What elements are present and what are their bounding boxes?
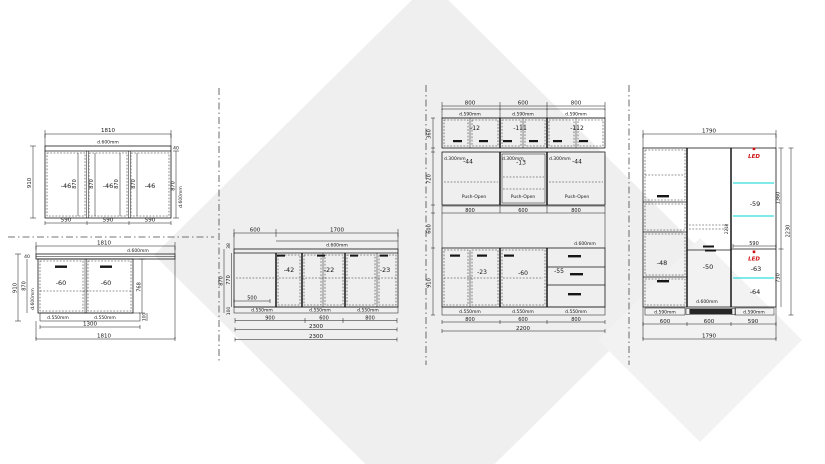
depth-label: d.550mm xyxy=(459,309,481,315)
depth-label: d.600mm xyxy=(696,299,718,305)
depth-label: d.590mm xyxy=(654,309,676,315)
dim-label: 2300 xyxy=(309,334,323,340)
dim-label: 2200 xyxy=(516,326,530,332)
dim-label: 870 xyxy=(89,179,95,189)
depth-label: d.550mm xyxy=(309,308,331,314)
depth-label: d.590mm xyxy=(743,309,765,315)
dim-label: 870 xyxy=(131,179,137,189)
dim-label: 900 xyxy=(265,315,275,321)
depth-label: d.600mm xyxy=(574,241,596,247)
door-label: -23 xyxy=(477,269,487,276)
door-label: -48 xyxy=(657,259,668,267)
dim-label: 600 xyxy=(319,315,329,321)
depth-label: d.590mm xyxy=(565,111,587,117)
depth-label: d.550mm xyxy=(47,315,69,321)
dim-label: 2300 xyxy=(309,324,323,330)
depth-label: d.550mm xyxy=(565,309,587,315)
dim-label: 600 xyxy=(518,208,528,214)
led-label: LED xyxy=(748,154,760,160)
dim-label: 1790 xyxy=(702,334,716,340)
door-label: -60 xyxy=(518,270,528,277)
depth-label: d.600mm xyxy=(97,140,119,146)
dim-label: 600 xyxy=(704,319,715,325)
dim-label: 590 xyxy=(749,241,759,247)
dim-label: 100 xyxy=(226,307,232,316)
depth-label: d.300mm xyxy=(549,156,571,162)
depth-label: d.550mm xyxy=(512,309,534,315)
depth-label: d.600mm xyxy=(326,243,348,249)
dim-label: 870 xyxy=(171,181,177,191)
led-label: LED xyxy=(748,257,760,263)
door-label: -46 xyxy=(145,182,156,190)
door-label: -111 xyxy=(513,125,527,132)
depth-label: d.600mm xyxy=(127,248,149,254)
dim-label: 800 xyxy=(571,317,581,323)
dim-label: 870 xyxy=(72,179,78,189)
dim-label: 800 xyxy=(571,208,581,214)
dim-label: 1700 xyxy=(330,228,344,234)
dim-label: 720 xyxy=(427,174,433,184)
dim-label: 910 xyxy=(27,177,33,188)
depth-label: d.550mm xyxy=(94,315,116,321)
dim-label: 1360 xyxy=(776,192,782,205)
dim-label: 590 xyxy=(61,218,72,224)
depth-label: d.600mm xyxy=(178,186,184,208)
door-label: -59 xyxy=(750,200,761,208)
dim-label: 600 xyxy=(518,101,529,107)
push-open-label: Push-Open xyxy=(462,194,487,200)
dim-label: 1790 xyxy=(702,129,716,135)
dim-label: 40 xyxy=(173,146,179,152)
door-label: -64 xyxy=(750,288,761,296)
door-label: -44 xyxy=(572,159,582,166)
door-label: -42 xyxy=(284,266,295,274)
door-label: -22 xyxy=(324,266,335,274)
door-label: -63 xyxy=(751,265,762,273)
door-label: -23 xyxy=(380,266,391,274)
dim-label: 360 xyxy=(427,129,433,139)
depth-label: d.550mm xyxy=(357,308,379,314)
dim-label: 1810 xyxy=(101,128,115,134)
dim-label: 500 xyxy=(247,296,257,302)
dim-label: 600 xyxy=(518,317,528,323)
dim-label: 730 xyxy=(776,273,782,283)
led-spot-icon xyxy=(753,148,756,151)
led-spot-icon xyxy=(753,251,756,254)
dim-label: 590 xyxy=(145,218,156,224)
door-label: -55 xyxy=(554,268,564,275)
door-label: -60 xyxy=(56,279,67,287)
door-label: -13 xyxy=(516,160,526,167)
door-label: -60 xyxy=(101,279,112,287)
dim-label: 800 xyxy=(465,208,475,214)
cad-canvas: 1810 d.600mm 870 870 870 870 -46 -46 -46… xyxy=(0,0,825,464)
dim-label: 38 xyxy=(226,243,232,249)
push-open-label: Push-Open xyxy=(565,194,590,200)
wall-cabinet-drawing: 1810 d.600mm 870 870 870 870 -46 -46 -46… xyxy=(27,128,184,225)
dim-label: 1810 xyxy=(97,241,111,247)
dim-label: 870 xyxy=(22,281,28,291)
dim-label: 870 xyxy=(219,276,225,286)
push-open-label: Push-Open xyxy=(511,194,536,200)
vent-grille xyxy=(690,309,732,315)
base-cabinet-drawing: 1810 d.600mm 40 -60 -60 d.550mm d.550mm … xyxy=(13,241,176,342)
door-label: -46 xyxy=(61,182,72,190)
door-label: -44 xyxy=(463,159,473,166)
dim-label: 2230 xyxy=(786,225,792,238)
door-label: -12 xyxy=(470,125,480,132)
depth-label: d.590mm xyxy=(512,111,534,117)
depth-label: d.600mm xyxy=(30,288,36,310)
dim-label: 1810 xyxy=(97,334,111,340)
door-label: -50 xyxy=(703,263,714,271)
dim-label: 1300 xyxy=(83,322,97,328)
dim-label: 800 xyxy=(465,101,476,107)
dim-label: 800 xyxy=(465,317,475,323)
dim-label: 800 xyxy=(365,315,375,321)
dim-label: 600 xyxy=(660,319,671,325)
dim-label: 870 xyxy=(114,179,120,189)
door-label: -112 xyxy=(570,125,584,132)
dim-label: 800 xyxy=(571,101,582,107)
door-label: -46 xyxy=(103,182,114,190)
dim-label: 600 xyxy=(427,224,433,234)
dim-label: 910 xyxy=(427,278,433,288)
dim-label: 600 xyxy=(250,228,261,234)
dim-label: 100 xyxy=(142,313,148,322)
depth-label: d.550mm xyxy=(251,308,273,314)
kitchen-cad-sheet: 1810 d.600mm 870 870 870 870 -46 -46 -46… xyxy=(0,0,825,464)
dim-label: 910 xyxy=(13,282,19,293)
dim-label: 590 xyxy=(748,319,759,325)
dim-label: 770 xyxy=(226,275,232,285)
dim-label: 590 xyxy=(103,218,114,224)
dim-label: 2218 xyxy=(724,223,729,234)
dim-label: 768 xyxy=(137,282,143,292)
depth-label: d.590mm xyxy=(459,111,481,117)
